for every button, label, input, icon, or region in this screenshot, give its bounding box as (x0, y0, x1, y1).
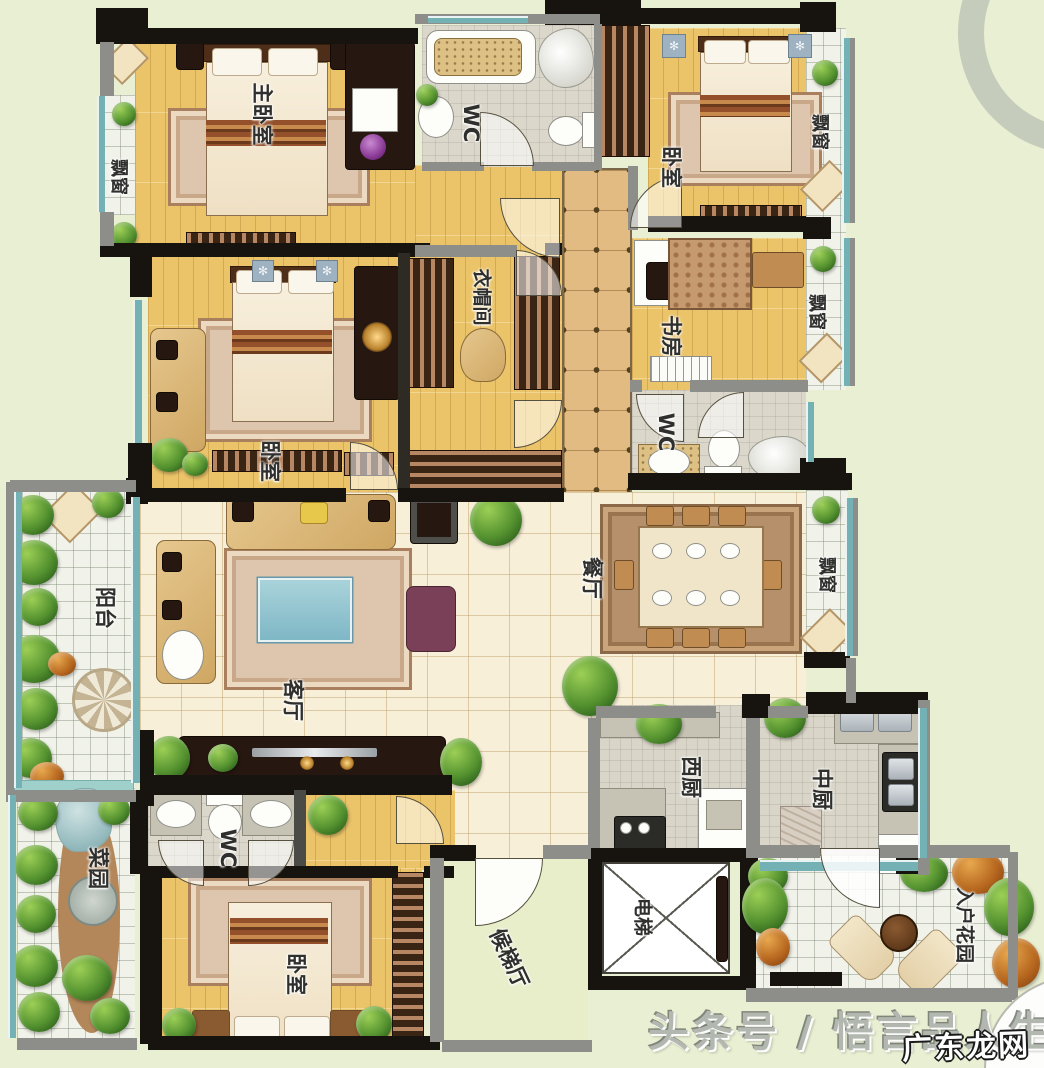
master-bed-pillow (212, 48, 262, 76)
plate (720, 590, 740, 606)
study-daybed (668, 238, 752, 310)
wall-segment (442, 1040, 592, 1052)
bathtub-inner (434, 38, 522, 76)
sofa-pillow (156, 340, 178, 360)
wall-segment (690, 380, 808, 392)
plant (112, 102, 136, 126)
wall-segment (746, 845, 820, 858)
master-dresser (352, 88, 398, 132)
room-label-bedroom-bottom: 卧室 (282, 953, 312, 995)
wall-segment (588, 976, 756, 990)
study-cabinet (752, 252, 804, 288)
wall-segment (806, 692, 928, 714)
dining-chair (646, 506, 674, 526)
sofa-pillow (232, 500, 254, 522)
sofa-pillow (156, 392, 178, 412)
window (428, 16, 528, 23)
corner-tile-icon: ✻ (662, 34, 686, 58)
bay-window-label: 飘窗 (815, 557, 841, 593)
bedroom-bottom-blanket (230, 918, 328, 944)
burner (888, 784, 914, 806)
wall-segment (742, 694, 770, 718)
wall-segment (846, 658, 856, 703)
wheel-table (72, 668, 136, 732)
west-kitchen-sink (706, 800, 742, 830)
wall-segment (800, 458, 846, 490)
room-label-chinese-kitchen: 中厨 (808, 768, 838, 810)
wall-segment (588, 848, 602, 990)
wall-segment (878, 845, 1010, 858)
plate (652, 543, 672, 559)
plant (208, 744, 238, 772)
plant (742, 878, 788, 934)
door-mat (770, 972, 842, 986)
plant (18, 992, 60, 1032)
wall-segment (596, 706, 716, 718)
dining-chair (718, 628, 746, 648)
shower-tray (538, 28, 594, 88)
corridor-floor (562, 168, 632, 494)
cloakroom-wardrobe-left (408, 258, 454, 388)
master-nightstand (176, 42, 204, 70)
bedroom-tr-pillow (704, 40, 746, 64)
plant (810, 246, 836, 272)
room-label-living: 客厅 (279, 679, 309, 721)
plant (416, 84, 438, 106)
plant (14, 845, 58, 885)
bedroom-tr-pillow (748, 40, 790, 64)
plate (652, 590, 672, 606)
room-label-elevator: 电梯 (631, 898, 658, 936)
plate (720, 543, 740, 559)
plate (686, 590, 706, 606)
toilet-bowl (548, 116, 584, 146)
dining-chair (718, 506, 746, 526)
plant (62, 955, 112, 1001)
window (842, 38, 850, 223)
wall-segment (130, 255, 152, 297)
room-label-vegetable-garden: 菜园 (84, 847, 114, 889)
dining-chair (682, 506, 710, 526)
room-label-study: 书房 (657, 315, 687, 357)
wall-segment (398, 253, 410, 493)
corner-tile-icon: ✻ (316, 260, 338, 282)
flower-pot (360, 134, 386, 160)
wall-segment (398, 488, 564, 502)
wall-segment (746, 718, 760, 858)
wall-segment (430, 858, 444, 1042)
dining-table (638, 526, 764, 628)
wc-bottom-basin (156, 800, 196, 828)
wall-segment (148, 1036, 440, 1050)
plant (18, 588, 58, 626)
sofa-pillow (162, 552, 182, 572)
wall-segment (638, 8, 806, 24)
wall-segment (768, 706, 808, 718)
plant-pot (756, 928, 790, 966)
room-label-wc-top: WC (459, 104, 483, 143)
window (806, 402, 814, 462)
armchair (406, 586, 456, 652)
burner (620, 822, 632, 834)
wall-segment (100, 212, 114, 246)
master-bed-pillow (268, 48, 318, 76)
plant (92, 488, 124, 518)
watermark-ring (958, 0, 1044, 154)
wall-segment (6, 482, 14, 802)
dining-chair (646, 628, 674, 648)
tv-screen (252, 748, 377, 757)
bay-window-label: 飘窗 (805, 294, 831, 330)
wall-segment (594, 24, 602, 170)
window (918, 708, 927, 858)
plant (812, 496, 840, 524)
window (8, 795, 16, 1038)
corner-tile-glyph: ✻ (322, 265, 332, 277)
plate (686, 543, 706, 559)
wall-segment (588, 848, 758, 862)
room-label-balcony: 阳台 (91, 587, 121, 629)
wall-segment (803, 217, 831, 239)
pumpkin (48, 652, 76, 676)
dining-chair (762, 560, 782, 590)
corner-tile-icon: ✻ (788, 34, 812, 58)
bedroom-bottom-wardrobe (392, 872, 424, 1042)
watermark-site-logo: 广东龙网 (901, 1020, 1030, 1068)
window (97, 96, 105, 212)
coffee-table (258, 578, 352, 642)
room-label-dining: 餐厅 (578, 557, 608, 599)
wall-segment (1008, 852, 1018, 1000)
room-label-wc-middle: WC (654, 413, 678, 452)
wall-segment (294, 790, 306, 872)
window (842, 238, 850, 386)
window (131, 497, 140, 783)
wall-segment (630, 380, 642, 392)
room-label-wc-bottom: WC (216, 829, 240, 868)
plant (308, 795, 348, 835)
corner-tile-glyph: ✻ (669, 40, 679, 52)
burner (888, 758, 914, 780)
cloakroom-chair (460, 328, 506, 382)
garden-table (880, 914, 918, 952)
corner-tile-icon: ✻ (252, 260, 274, 282)
plant (182, 452, 208, 476)
plant (812, 60, 838, 86)
elevator-shaft (602, 862, 730, 974)
wall-segment (422, 162, 484, 171)
window (14, 492, 22, 788)
wall-segment (588, 718, 600, 848)
room-label-bedroom-middle: 卧室 (256, 440, 286, 482)
wall-segment (10, 480, 136, 492)
plant (90, 998, 130, 1034)
cabinet-light (300, 756, 314, 770)
wc-mid-basin (648, 448, 690, 476)
plant (764, 698, 806, 738)
wall-segment (122, 28, 418, 44)
wardrobe (600, 25, 650, 157)
plant (16, 895, 56, 933)
plant (12, 945, 58, 987)
sofa-pillow (368, 500, 390, 522)
wall-segment (17, 1038, 137, 1050)
window (133, 300, 142, 443)
plant (148, 736, 190, 780)
wall-segment (804, 652, 850, 668)
sofa-pillow (162, 600, 182, 620)
wall-segment (800, 2, 836, 32)
study-bookshelf (650, 356, 712, 382)
cloakroom-cabinet (402, 450, 562, 490)
room-label-cloakroom: 衣帽间 (470, 268, 497, 325)
window (845, 498, 853, 656)
floor-plan: ✻ ✻ ✻ ✻ (0, 0, 1044, 1068)
wall-segment (543, 845, 591, 859)
wall-segment (532, 162, 596, 171)
wc-bottom-basin (250, 800, 292, 828)
room-label-entry-garden: 入户花园 (953, 887, 980, 963)
sofa-throw (162, 630, 204, 680)
burner (638, 822, 650, 834)
dining-chair (682, 628, 710, 648)
wall-segment (100, 42, 114, 96)
bay-window-label: 飘窗 (107, 159, 133, 195)
corner-tile-glyph: ✻ (795, 40, 805, 52)
bedroom-tr-blanket (700, 95, 790, 117)
elevator-rail (716, 876, 728, 962)
wall-segment (415, 245, 517, 257)
corner-tile-glyph: ✻ (258, 265, 268, 277)
room-label-bedroom-top-right: 卧室 (657, 146, 687, 188)
bedroom-mid-blanket (232, 330, 332, 354)
bay-window-label: 飘窗 (808, 114, 834, 150)
wall-segment (140, 868, 162, 1044)
wall-segment (130, 488, 346, 502)
wall-segment (130, 790, 148, 874)
wall-segment (10, 790, 136, 802)
lamp-glow (362, 322, 392, 352)
side-table (410, 496, 458, 544)
cabinet-light (340, 756, 354, 770)
dining-chair (614, 560, 634, 590)
room-label-west-kitchen: 西厨 (677, 756, 707, 798)
room-label-master-bedroom: 主卧室 (248, 83, 278, 146)
sofa-pillow-yellow (300, 502, 328, 524)
